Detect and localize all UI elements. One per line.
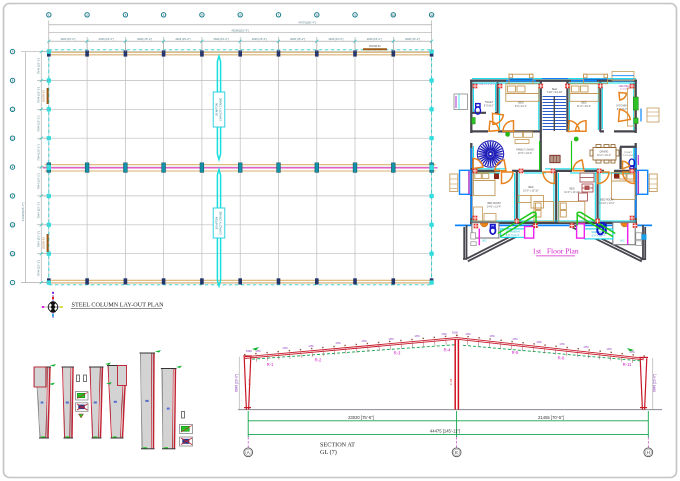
svg-text:1350: 1350 — [512, 338, 518, 341]
svg-text:14'-8" x 13'-4": 14'-8" x 13'-4" — [487, 206, 501, 208]
svg-text:4626 [15'-2"]: 4626 [15'-2"] — [99, 37, 114, 41]
svg-text:FAMILY LIVING: FAMILY LIVING — [516, 149, 534, 152]
svg-text:1350: 1350 — [414, 335, 420, 338]
svg-text:6'-8" X 21'-4": 6'-8" X 21'-4" — [592, 235, 606, 238]
svg-text:1350: 1350 — [559, 343, 565, 346]
svg-text:8'-0 x 12'-1": 8'-0 x 12'-1" — [515, 106, 527, 108]
svg-text:4626 [15'-2"]: 4626 [15'-2"] — [367, 37, 382, 41]
svg-text:8848 [29'-0"]: 8848 [29'-0"] — [652, 374, 656, 392]
svg-text:4626 [15'-2"]: 4626 [15'-2"] — [137, 37, 152, 41]
svg-text:BED ROOM: BED ROOM — [487, 202, 500, 205]
svg-text:1350: 1350 — [361, 340, 367, 343]
svg-text:R-2: R-2 — [315, 358, 322, 363]
svg-text:1350: 1350 — [255, 350, 261, 353]
svg-text:21455 [70'-5"]: 21455 [70'-5"] — [538, 415, 564, 420]
svg-text:R-1: R-1 — [267, 362, 274, 367]
svg-text:R-4: R-4 — [444, 348, 451, 353]
svg-text:TOILET: TOILET — [485, 101, 494, 104]
svg-text:7044 [23'-1"]: 7044 [23'-1"] — [37, 116, 41, 132]
svg-text:7044 [23'-1"]: 7044 [23'-1"] — [37, 87, 41, 103]
svg-text:DOOR 03: DOOR 03 — [42, 90, 46, 102]
svg-text:C-06: C-06 — [248, 378, 252, 385]
svg-text:7044 [23'-1"]: 7044 [23'-1"] — [37, 173, 41, 189]
svg-text:W.TOILET 4'-0"x2'-5": W.TOILET 4'-0"x2'-5" — [475, 84, 496, 86]
svg-text:4626 [15'-2"]: 4626 [15'-2"] — [252, 37, 267, 41]
svg-text:6'-8" X 21'-4": 6'-8" X 21'-4" — [506, 234, 520, 237]
svg-text:7'-1.5"x4'-0": 7'-1.5"x4'-0" — [622, 155, 633, 157]
svg-text:W.C: W.C — [620, 239, 625, 242]
svg-text:GL (7): GL (7) — [320, 449, 337, 456]
svg-text:23020 [75'-6"]: 23020 [75'-6"] — [348, 415, 374, 420]
svg-text:DOOR 01: DOOR 01 — [369, 44, 381, 48]
svg-text:1350: 1350 — [465, 333, 471, 336]
svg-text:4'-1"x2'-5": 4'-1"x2'-5" — [620, 89, 630, 91]
svg-text:4626 [15'-2"]: 4626 [15'-2"] — [405, 37, 420, 41]
svg-text:CAPACITY CRANE: CAPACITY CRANE — [219, 98, 223, 122]
svg-text:12'-0" x 10'-2": 12'-0" x 10'-2" — [597, 155, 611, 157]
svg-text:BED: BED — [570, 188, 575, 191]
svg-text:R-3: R-3 — [394, 350, 401, 355]
svg-text:BED: BED — [581, 102, 586, 105]
svg-text:50 M/TON: 50 M/TON — [215, 103, 219, 115]
svg-text:41338[135'-7"]: 41338[135'-7"] — [21, 203, 25, 222]
svg-text:8100: 8100 — [452, 331, 458, 335]
svg-text:4626 [15'-2"]: 4626 [15'-2"] — [328, 37, 343, 41]
svg-text:4626 [15'-2"]: 4626 [15'-2"] — [214, 37, 229, 41]
svg-text:G: G — [12, 224, 14, 227]
svg-text:11'-0" x 10'-0": 11'-0" x 10'-0" — [577, 106, 591, 108]
svg-text:4626 [15'-2"]: 4626 [15'-2"] — [60, 37, 75, 41]
svg-text:DINING: DINING — [600, 151, 609, 154]
svg-text:4626 [15'-2"]: 4626 [15'-2"] — [175, 37, 190, 41]
svg-text:1st Floor Plan: 1st Floor Plan — [532, 247, 579, 256]
svg-text:D: D — [12, 137, 14, 140]
svg-text:R-11: R-11 — [623, 362, 632, 367]
svg-text:BED: BED — [529, 186, 534, 189]
svg-text:16'-5" x 16'-0": 16'-5" x 16'-0" — [518, 153, 532, 155]
svg-text:CAPACITY CRANE: CAPACITY CRANE — [219, 211, 223, 235]
svg-text:DOOR 03: DOOR 03 — [42, 237, 46, 249]
svg-text:1350: 1350 — [489, 335, 495, 338]
svg-text:A: A — [247, 450, 250, 455]
svg-text:1350: 1350 — [335, 342, 341, 345]
svg-text:W.C: W.C — [482, 239, 487, 242]
svg-text:BED: BED — [518, 102, 523, 105]
svg-text:8848 [29'-0"]: 8848 [29'-0"] — [235, 374, 239, 392]
svg-text:H: H — [647, 450, 650, 455]
svg-text:E: E — [455, 450, 458, 455]
svg-text:14'-10" x 13'-0": 14'-10" x 13'-0" — [599, 203, 615, 205]
svg-text:50 M/TON: 50 M/TON — [215, 217, 219, 229]
svg-text:10'-0" x 13'-10": 10'-0" x 13'-10" — [523, 191, 539, 193]
svg-text:7044 [23'-1"]: 7044 [23'-1"] — [37, 58, 41, 74]
svg-text:STEEL COLUMN LAY-OUT PLAN: STEEL COLUMN LAY-OUT PLAN — [72, 301, 165, 308]
svg-text:KITCHEN: KITCHEN — [617, 104, 628, 107]
svg-text:BED ROOM: BED ROOM — [600, 198, 613, 201]
svg-text:C: C — [12, 108, 14, 111]
svg-text:1350: 1350 — [629, 351, 635, 354]
svg-text:7044 [23'-1"]: 7044 [23'-1"] — [37, 260, 41, 276]
svg-text:C-08: C-08 — [449, 378, 453, 385]
svg-text:1350: 1350 — [282, 347, 288, 350]
svg-text:4626 [15'-2"]: 4626 [15'-2"] — [290, 37, 305, 41]
svg-text:7044 [23'-1"]: 7044 [23'-1"] — [37, 231, 41, 247]
svg-text:1350: 1350 — [606, 348, 612, 351]
svg-text:1350: 1350 — [308, 345, 314, 348]
svg-text:7044 [23'-1"]: 7044 [23'-1"] — [37, 202, 41, 218]
svg-text:1350: 1350 — [583, 346, 589, 349]
svg-text:46256[151'-9"]: 46256[151'-9"] — [231, 28, 249, 32]
svg-text:47670[156'-4"]: 47670[156'-4"] — [298, 21, 316, 25]
svg-text:1350: 1350 — [536, 341, 542, 344]
svg-text:R-5: R-5 — [512, 350, 519, 355]
svg-text:7'-10" x 14'-10": 7'-10" x 14'-10" — [546, 91, 562, 94]
svg-text:5'-0"x6'-1": 5'-0"x6'-1" — [484, 105, 494, 107]
svg-text:H: H — [12, 253, 14, 256]
svg-text:10'-0" x 13'-10": 10'-0" x 13'-10" — [564, 192, 580, 194]
svg-text:44475 [145'-11"]: 44475 [145'-11"] — [430, 429, 460, 434]
svg-text:5448: 5448 — [246, 349, 252, 353]
svg-text:7044 [23'-1"]: 7044 [23'-1"] — [37, 144, 41, 160]
svg-text:1350: 1350 — [388, 338, 394, 341]
svg-text:1350: 1350 — [441, 333, 447, 336]
svg-text:Stair: Stair — [552, 87, 557, 91]
svg-text:SECTION AT: SECTION AT — [320, 442, 355, 449]
svg-text:R-6: R-6 — [558, 356, 565, 361]
svg-text:TOILET: TOILET — [624, 152, 632, 154]
